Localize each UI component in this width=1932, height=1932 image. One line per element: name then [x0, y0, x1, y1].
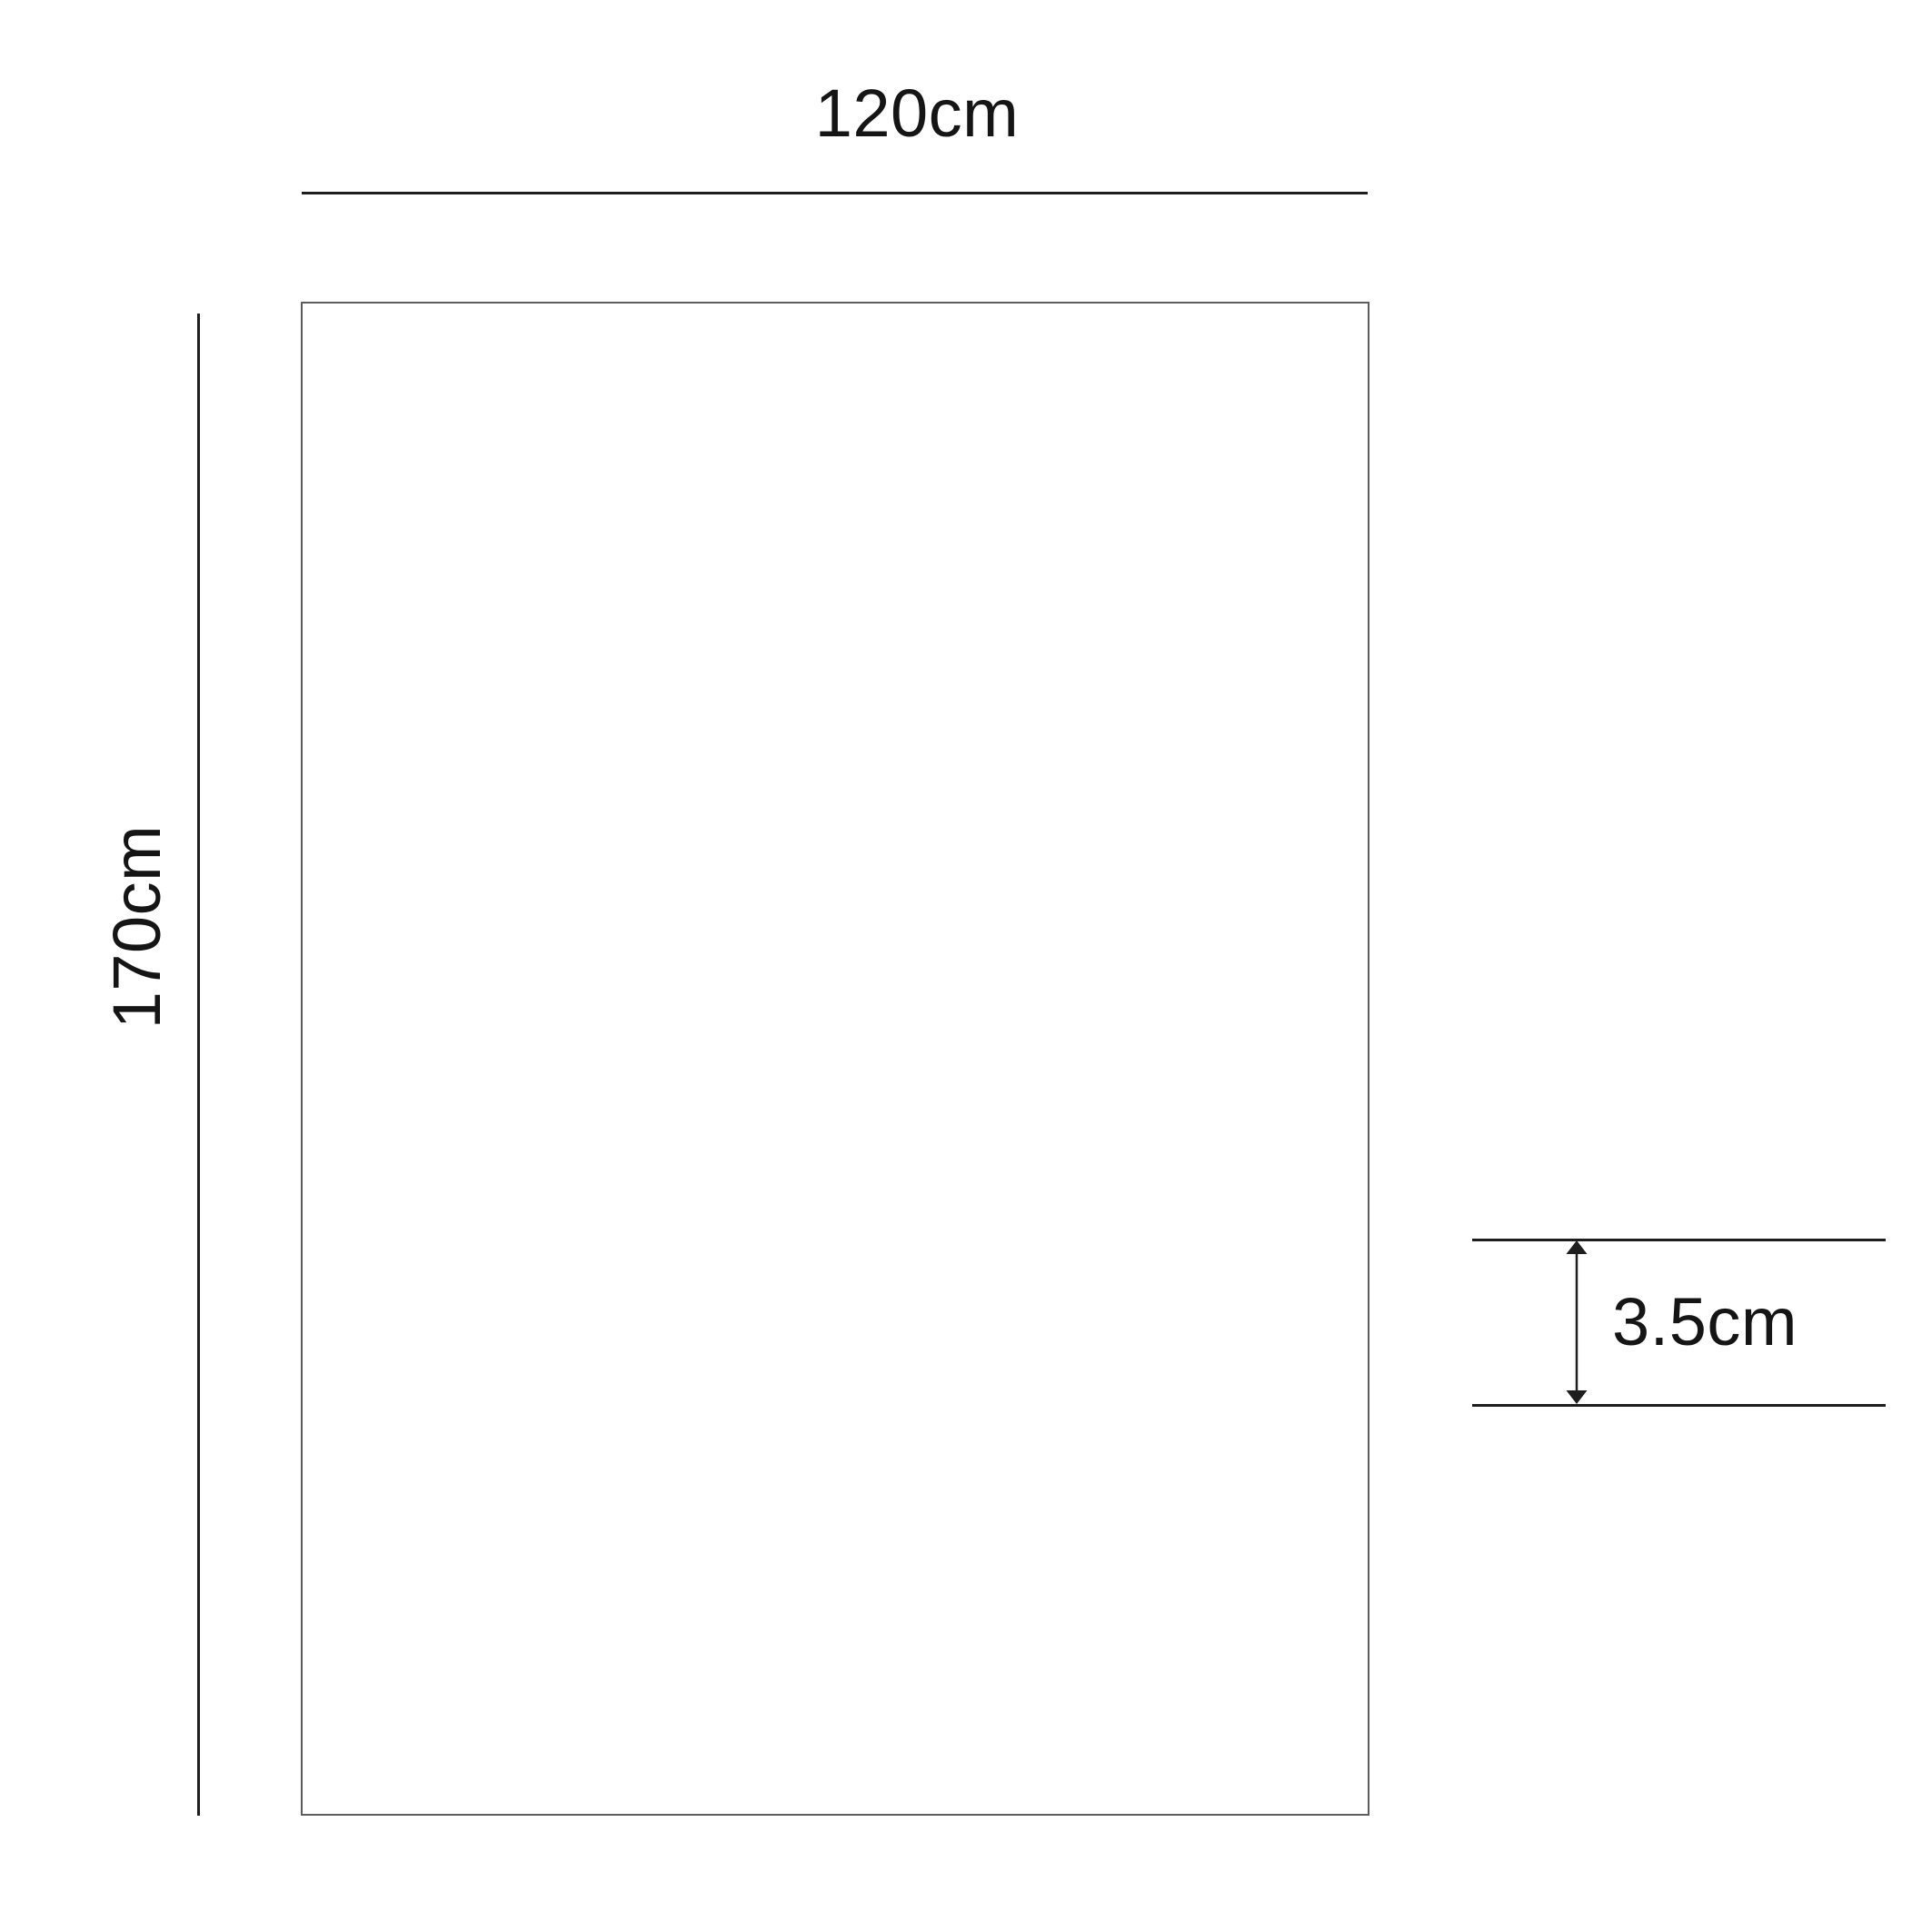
thickness-dimension-label: 3.5cm	[1612, 1289, 1798, 1356]
height-dimension-line	[197, 314, 200, 1816]
thickness-bottom-line	[1472, 1404, 1886, 1407]
double-arrow-icon	[1557, 1240, 1597, 1404]
panel-outline	[301, 302, 1369, 1816]
width-dimension-line	[302, 192, 1368, 194]
height-dimension-label: 170cm	[104, 825, 171, 1030]
width-dimension-label: 120cm	[815, 80, 1020, 147]
dimension-diagram: 120cm 170cm 3.5cm	[0, 0, 1932, 1932]
thickness-top-line	[1472, 1239, 1886, 1241]
